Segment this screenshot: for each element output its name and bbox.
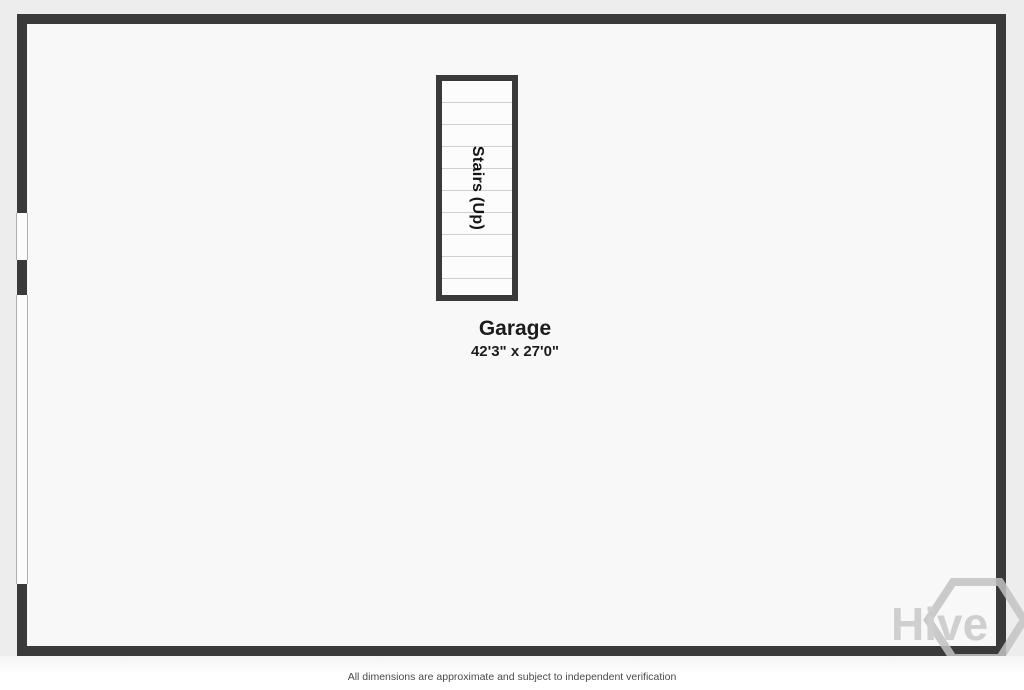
stairs: Stairs (Up) (436, 75, 518, 301)
footer-strip: All dimensions are approximate and subje… (0, 656, 1024, 690)
room-dimensions: 42'3" x 27'0" (471, 343, 559, 360)
wall-opening-lower (16, 295, 28, 584)
wall-opening-upper (16, 213, 28, 260)
footer-disclaimer: All dimensions are approximate and subje… (0, 671, 1024, 683)
stairs-label: Stairs (Up) (468, 146, 486, 230)
room-name: Garage (471, 317, 559, 340)
room-label: Garage 42'3" x 27'0" (471, 317, 559, 360)
